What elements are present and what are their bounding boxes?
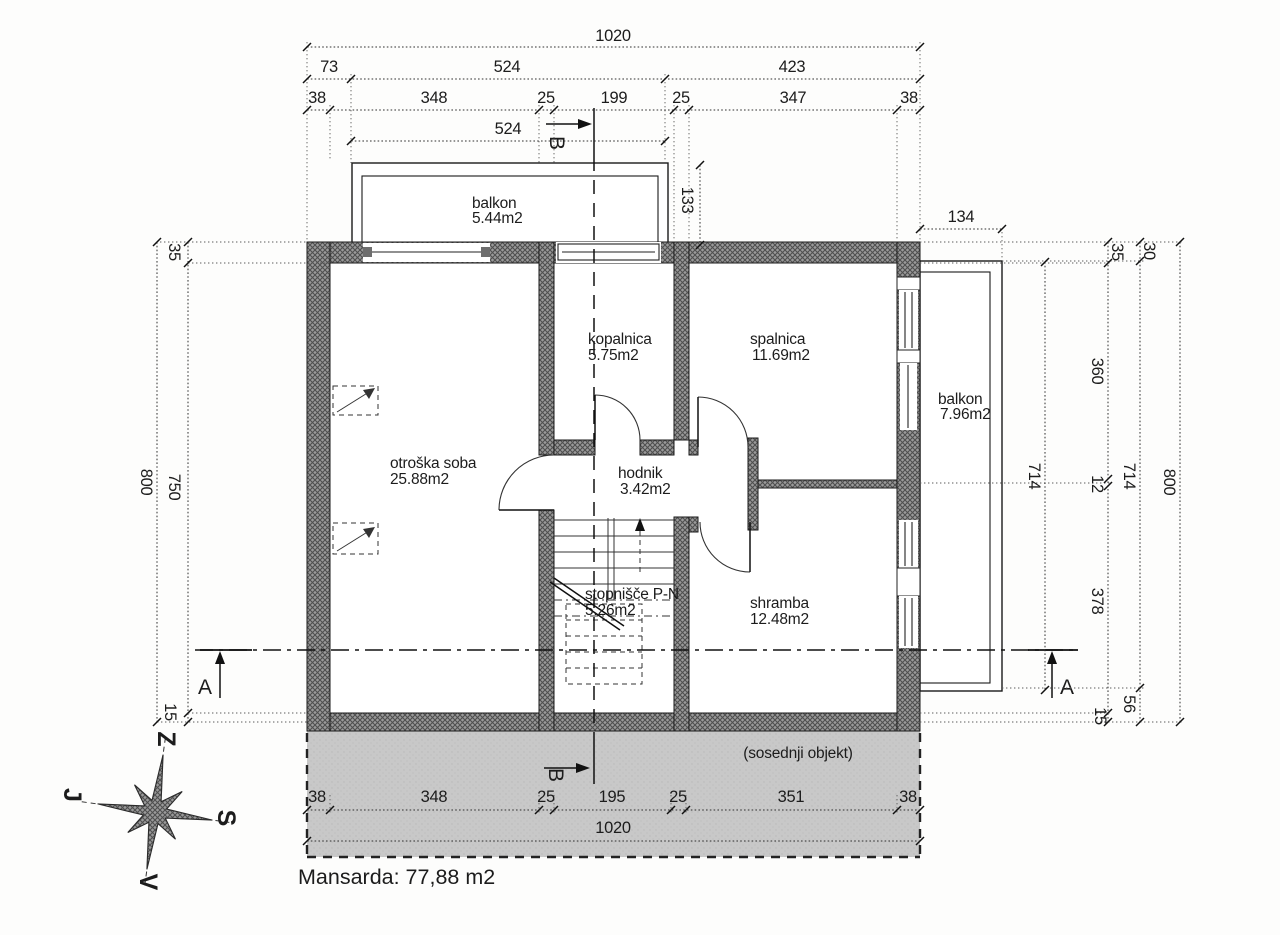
dim-750-left: 750: [165, 474, 183, 501]
dim-800-left: 800: [137, 469, 155, 496]
section-a-arrow-left: [215, 651, 225, 664]
dim-25-ta: 25: [537, 89, 555, 107]
compass-rose: Z J S V: [58, 731, 240, 890]
room-label-kopalnica-name: kopalnica: [588, 331, 652, 348]
dim-25-tb: 25: [672, 89, 690, 107]
dim-195: 195: [599, 788, 626, 806]
dim-73: 73: [320, 58, 338, 76]
balcony-right: [920, 261, 1002, 691]
wall-nook-bottom: [689, 517, 698, 532]
dim-total-width-bottom: 1020: [595, 819, 631, 837]
room-label-balkon-top-area: 5.44m2: [472, 210, 523, 227]
room-label-otroska-name: otroška soba: [390, 455, 477, 472]
page-title: Mansarda: 77,88 m2: [298, 865, 495, 889]
room-label-hodnik-name: hodnik: [618, 465, 663, 482]
dim-348-bottom: 348: [421, 788, 448, 806]
window-frame-box: [897, 568, 920, 596]
dim-38-br: 38: [899, 788, 917, 806]
wall-nook-pier: [748, 438, 758, 530]
compass-label-z: Z: [152, 731, 180, 746]
dim-378: 378: [1088, 588, 1106, 615]
wall-left: [307, 242, 330, 731]
dim-30: 30: [1140, 242, 1158, 260]
dim-199: 199: [601, 89, 628, 107]
neighbor-label: (sosednji objekt): [743, 745, 852, 762]
dim-524-b: 524: [495, 120, 522, 138]
dimensions-right: 714 35 360 12 378 15 30 714 56 800: [1025, 238, 1184, 726]
dim-347: 347: [780, 89, 807, 107]
room-label-stopnisce-name: stopnišče P-N: [585, 586, 679, 603]
wall-thin-divider: [758, 480, 897, 488]
room-label-spalnica-name: spalnica: [750, 331, 806, 348]
room-label-kopalnica-area: 5.75m2: [588, 347, 639, 364]
dim-524-a: 524: [494, 58, 521, 76]
floor-plan-svg: B B A A otroška soba 25.88m2 kopalnica 5…: [0, 0, 1280, 935]
dim-25-bb: 25: [669, 788, 687, 806]
dim-total-width-top: 1020: [595, 27, 631, 45]
room-label-shramba-area: 12.48m2: [750, 611, 809, 628]
dimensions-left: 800 35 750 15: [137, 238, 192, 726]
dim-133-balcony-depth: 133: [678, 187, 696, 214]
section-b-label-bottom: B: [544, 768, 567, 782]
room-label-stopnisce-area: 5.26m2: [585, 602, 636, 619]
dim-35-right: 35: [1108, 243, 1126, 261]
dim-714-outer: 714: [1120, 463, 1138, 490]
section-a-label-right: A: [1060, 676, 1074, 699]
section-a-arrow-right: [1047, 651, 1057, 664]
dim-35-left: 35: [165, 243, 183, 261]
room-label-balkon-right-area: 7.96m2: [940, 406, 991, 423]
section-b-label-top: B: [545, 136, 568, 150]
section-a-label-left: A: [198, 676, 212, 699]
window-frame-box: [897, 277, 920, 290]
wall-nook-top: [689, 440, 698, 455]
dim-38-tr: 38: [900, 89, 918, 107]
room-label-hodnik-area: 3.42m2: [620, 481, 671, 498]
wall-kopalnica-left: [554, 440, 595, 455]
dim-38-tl: 38: [308, 89, 326, 107]
wall-v2-upper: [674, 242, 689, 440]
wall-v2-lower: [674, 517, 689, 731]
window-block: [481, 247, 490, 257]
room-label-shramba-name: shramba: [750, 595, 809, 612]
wall-v1-lower: [539, 510, 554, 731]
dim-134-balcony-width: 134: [948, 208, 975, 226]
compass-label-j: J: [58, 788, 86, 802]
section-b-arrow-top: [578, 119, 592, 129]
dim-351: 351: [778, 788, 805, 806]
dim-360: 360: [1088, 358, 1106, 385]
wall-kopalnica-right: [640, 440, 674, 455]
dim-348-top: 348: [421, 89, 448, 107]
dim-423: 423: [779, 58, 806, 76]
dim-714-inner: 714: [1025, 463, 1043, 490]
compass-label-s: S: [212, 810, 240, 827]
dim-56: 56: [1120, 695, 1138, 713]
window-block: [363, 247, 372, 257]
dim-38-bl: 38: [308, 788, 326, 806]
dim-800-right: 800: [1160, 469, 1178, 496]
dim-25-ba: 25: [537, 788, 555, 806]
room-label-spalnica-area: 11.69m2: [752, 347, 810, 364]
wall-v1-upper: [539, 242, 554, 455]
wall-bottom: [307, 713, 920, 731]
window-frame-box: [897, 350, 920, 363]
compass-label-v: V: [134, 874, 162, 891]
dim-15-left: 15: [161, 703, 179, 721]
compass-star: [98, 755, 213, 870]
floor-plan-page: B B A A otroška soba 25.88m2 kopalnica 5…: [0, 0, 1280, 935]
dim-15-right: 15: [1091, 707, 1109, 725]
room-label-otroska-area: 25.88m2: [390, 471, 449, 488]
dim-12: 12: [1088, 475, 1106, 493]
